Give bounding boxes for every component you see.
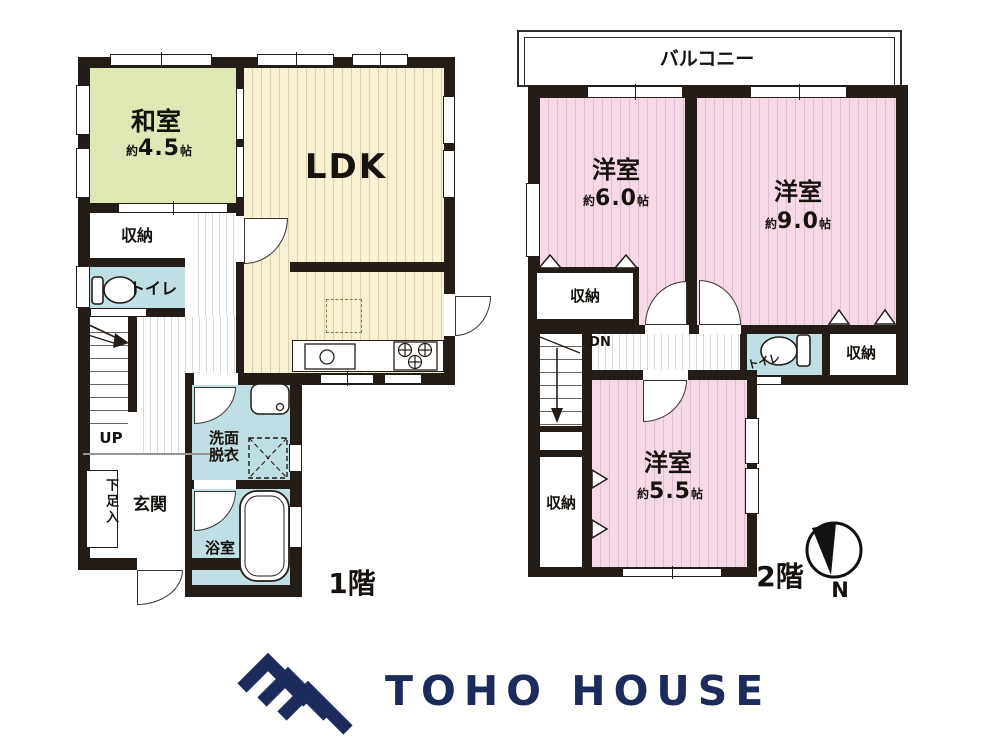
window bbox=[745, 418, 759, 464]
wall bbox=[128, 317, 137, 412]
door-opening bbox=[643, 370, 688, 380]
stair-landing-box bbox=[540, 432, 582, 450]
wall bbox=[290, 262, 444, 272]
door-opening bbox=[645, 325, 689, 334]
wall bbox=[528, 85, 908, 98]
window bbox=[756, 376, 782, 385]
window bbox=[745, 468, 759, 514]
refrigerator-space bbox=[326, 299, 362, 333]
floorplan-canvas: 和室 約4.5帖 LDK 収納 トイレ UP 玄関 下足入 洗面 脱衣 浴室 1… bbox=[0, 0, 1000, 750]
room-label-closet-2f-c: 収納 bbox=[546, 495, 576, 512]
sliding-door bbox=[236, 146, 244, 198]
hallway-1f bbox=[137, 317, 236, 377]
window bbox=[90, 308, 147, 317]
wall bbox=[540, 450, 582, 457]
sliding-door bbox=[236, 88, 244, 140]
room-label-bathroom: 浴室 bbox=[205, 540, 235, 557]
door-opening bbox=[194, 480, 236, 489]
compass-icon bbox=[807, 523, 861, 577]
stairs-2f bbox=[540, 334, 582, 426]
window bbox=[110, 54, 212, 66]
room-label-genkan: 玄関 bbox=[133, 496, 167, 516]
wall bbox=[740, 334, 747, 375]
room-label-bedroom55: 洋室 bbox=[644, 450, 692, 478]
balcony-label: バルコニー bbox=[660, 49, 755, 71]
wall bbox=[88, 258, 185, 267]
door-opening bbox=[699, 325, 741, 334]
door-opening bbox=[236, 216, 244, 262]
hallway-1f bbox=[137, 377, 185, 455]
door-swing bbox=[137, 570, 183, 605]
compass-north-label: N bbox=[831, 578, 849, 602]
window bbox=[587, 86, 683, 98]
window bbox=[76, 266, 90, 308]
room-label-bedroom6: 洋室 bbox=[592, 157, 640, 185]
wall bbox=[896, 85, 908, 385]
stairs-label-dn: DN bbox=[589, 336, 611, 351]
logo-brand-text: TOHO HOUSE bbox=[385, 667, 771, 715]
door-opening bbox=[194, 373, 238, 385]
room-label-bedroom9: 洋室 bbox=[774, 179, 822, 207]
window bbox=[622, 568, 722, 577]
hallway-2f bbox=[592, 334, 747, 370]
room-label-closet-2f-a: 収納 bbox=[570, 288, 600, 305]
door-opening bbox=[444, 294, 455, 336]
room-size-washitsu: 約4.5帖 bbox=[126, 136, 192, 161]
room-label-closet-2f-b: 収納 bbox=[846, 345, 876, 362]
room-label-ldk: LDK bbox=[305, 148, 387, 187]
window bbox=[257, 54, 334, 66]
room-size-bedroom9: 約9.0帖 bbox=[765, 209, 831, 234]
room-label-closet-1f: 収納 bbox=[121, 227, 153, 245]
door-opening bbox=[137, 558, 185, 570]
window bbox=[526, 183, 540, 257]
window bbox=[443, 96, 455, 144]
window bbox=[289, 444, 302, 472]
window bbox=[320, 374, 374, 384]
sliding-door bbox=[118, 203, 228, 213]
room-size-bedroom6: 約6.0帖 bbox=[583, 186, 649, 211]
floor2-label: 2階 bbox=[756, 561, 803, 593]
wall bbox=[290, 385, 302, 597]
window bbox=[352, 54, 408, 66]
room-label-washroom: 洗面 脱衣 bbox=[209, 430, 239, 465]
stairs-label-up: UP bbox=[99, 430, 122, 447]
window bbox=[76, 85, 90, 135]
door-swing bbox=[455, 296, 491, 336]
wall bbox=[582, 325, 592, 577]
window bbox=[750, 86, 847, 98]
wall bbox=[540, 426, 582, 432]
room-size-bedroom55: 約5.5帖 bbox=[637, 479, 703, 504]
room-label-toilet-1f: トイレ bbox=[129, 280, 177, 298]
window bbox=[76, 148, 90, 198]
floor1-label: 1階 bbox=[328, 568, 375, 600]
window bbox=[384, 374, 422, 384]
logo-mark-icon bbox=[242, 662, 348, 730]
room-label-shoebox: 下足入 bbox=[102, 478, 117, 526]
window bbox=[289, 506, 302, 548]
window bbox=[443, 150, 455, 198]
stairs-1f bbox=[84, 320, 128, 428]
wall bbox=[185, 585, 302, 597]
wall bbox=[822, 334, 830, 375]
kitchen-counter bbox=[292, 340, 444, 372]
room-label-washitsu: 和室 bbox=[131, 108, 181, 137]
